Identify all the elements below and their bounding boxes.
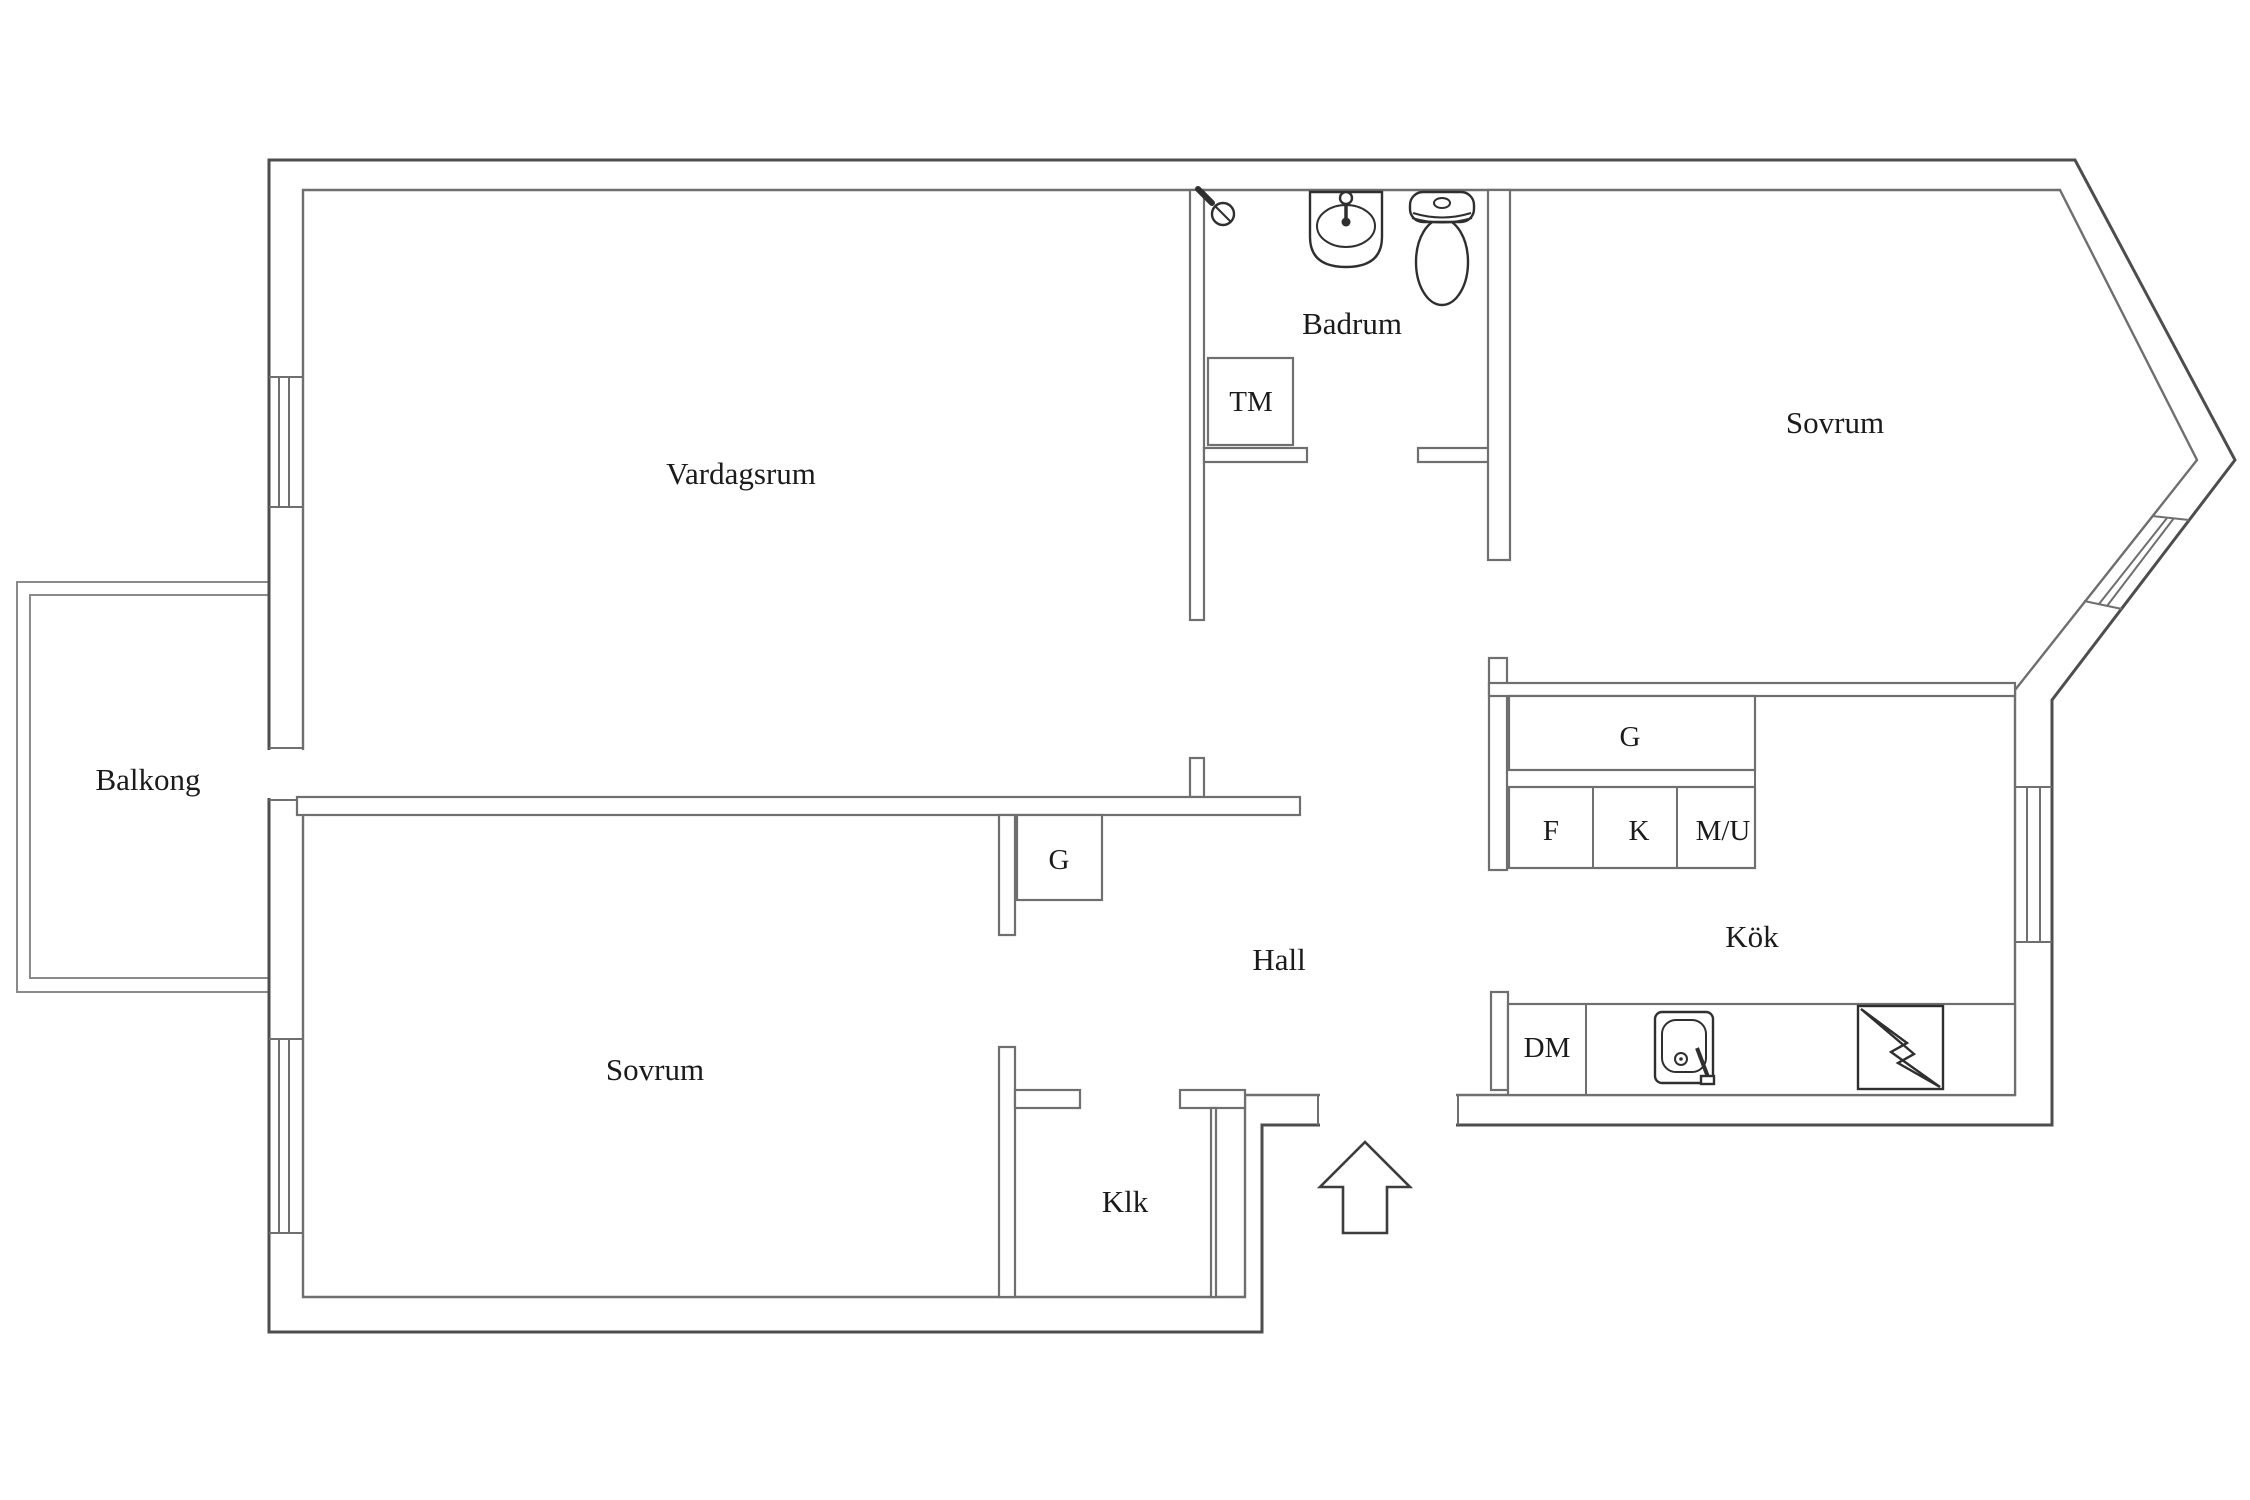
fixture-label-washing-machine: TM [1229, 386, 1273, 418]
room-label-hall: Hall [1252, 942, 1305, 977]
floorplan-page: Vardagsrum Badrum Sovrum Balkong Sovrum … [0, 0, 2250, 1500]
room-label-bedroom-right: Sovrum [1786, 405, 1884, 440]
entry-door-opening [1318, 1091, 1458, 1129]
bay-window [2084, 516, 2189, 609]
room-label-closet: Klk [1102, 1184, 1149, 1219]
fixture-label-k: K [1629, 815, 1650, 847]
fixture-label-hall-wardrobe: G [1049, 844, 1070, 876]
balcony-door-opening [265, 748, 307, 800]
exterior-walls [269, 160, 2235, 1332]
toilet-icon [1410, 192, 1474, 305]
kitchen-sink-icon [1655, 1012, 1714, 1084]
kitchen-window [2015, 787, 2052, 942]
stove-icon [1858, 1006, 1943, 1089]
entry-arrow-icon [1320, 1142, 1410, 1233]
room-label-bedroom-left: Sovrum [606, 1052, 704, 1087]
room-label-kitchen: Kök [1725, 919, 1779, 954]
bedroom-left-window [269, 1039, 303, 1233]
interior-walls [297, 190, 2015, 1297]
fixture-label-dishwasher: DM [1524, 1032, 1571, 1064]
fixture-label-mu: M/U [1696, 815, 1751, 847]
room-label-living-room: Vardagsrum [666, 456, 816, 491]
room-label-balcony: Balkong [95, 762, 200, 797]
fixture-label-f: F [1543, 815, 1559, 847]
fixture-label-kitchen-cabinet: G [1620, 721, 1641, 753]
living-room-window [269, 377, 303, 507]
apartment-floorplan: Vardagsrum Badrum Sovrum Balkong Sovrum … [0, 0, 2250, 1500]
washbasin-icon [1310, 192, 1382, 267]
room-label-bathroom: Badrum [1302, 306, 1402, 341]
